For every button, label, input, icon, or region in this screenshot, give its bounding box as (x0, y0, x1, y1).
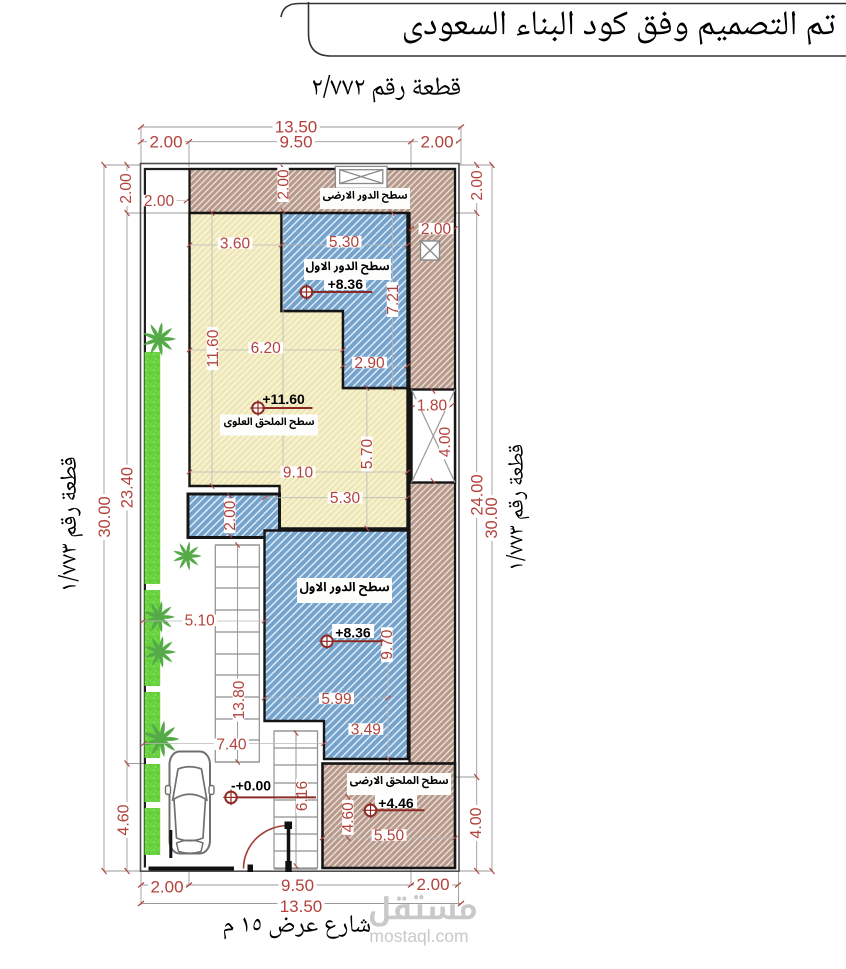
svg-text:6.16: 6.16 (294, 781, 311, 811)
svg-text:13.50: 13.50 (280, 897, 323, 916)
svg-text:3.49: 3.49 (351, 721, 381, 738)
svg-text:2.00: 2.00 (420, 132, 453, 151)
svg-text:2.00: 2.00 (118, 173, 135, 204)
svg-text:2.00: 2.00 (222, 500, 239, 531)
svg-text:2.00: 2.00 (149, 132, 182, 151)
svg-text:4.60: 4.60 (116, 804, 133, 835)
svg-text:5.30: 5.30 (329, 234, 360, 251)
svg-text:2.90: 2.90 (354, 355, 385, 372)
svg-text:+11.60: +11.60 (262, 391, 305, 407)
svg-text:2.00: 2.00 (469, 170, 486, 201)
svg-text:2.00: 2.00 (421, 221, 452, 238)
svg-text:4.00: 4.00 (437, 427, 454, 458)
svg-text:23.40: 23.40 (118, 467, 136, 508)
svg-text:9.10: 9.10 (283, 464, 314, 481)
svg-text:4.00: 4.00 (468, 807, 485, 838)
svg-text:2.00: 2.00 (416, 875, 449, 894)
svg-text:9.50: 9.50 (279, 132, 312, 151)
svg-text:4.60: 4.60 (340, 802, 357, 833)
svg-text:5.70: 5.70 (359, 439, 376, 470)
svg-text:+8.36: +8.36 (335, 624, 371, 640)
svg-text:7.21: 7.21 (385, 284, 402, 314)
svg-text:+4.46: +4.46 (378, 795, 414, 811)
svg-text:9.70: 9.70 (379, 629, 396, 660)
svg-text:5.30: 5.30 (330, 490, 361, 507)
svg-text:2.00: 2.00 (275, 169, 292, 200)
svg-text:13.80: 13.80 (231, 680, 248, 719)
svg-text:6.20: 6.20 (251, 340, 282, 357)
svg-text:+8.36: +8.36 (328, 276, 364, 292)
svg-text:2.00: 2.00 (144, 193, 175, 210)
svg-text:5.10: 5.10 (185, 613, 216, 630)
svg-text:mostaql.com: mostaql.com (369, 926, 468, 946)
svg-text:5.50: 5.50 (374, 827, 405, 844)
svg-text:30.00: 30.00 (483, 497, 501, 538)
svg-text:5.99: 5.99 (321, 691, 351, 708)
svg-text:3.60: 3.60 (220, 235, 251, 252)
svg-text:2.00: 2.00 (150, 877, 183, 896)
svg-text:-+0.00: -+0.00 (231, 778, 271, 794)
svg-text:9.50: 9.50 (281, 876, 314, 895)
svg-text:30.00: 30.00 (96, 496, 114, 537)
svg-text:11.60: 11.60 (205, 329, 222, 367)
svg-text:1.80: 1.80 (417, 397, 448, 414)
svg-text:7.40: 7.40 (216, 737, 247, 754)
